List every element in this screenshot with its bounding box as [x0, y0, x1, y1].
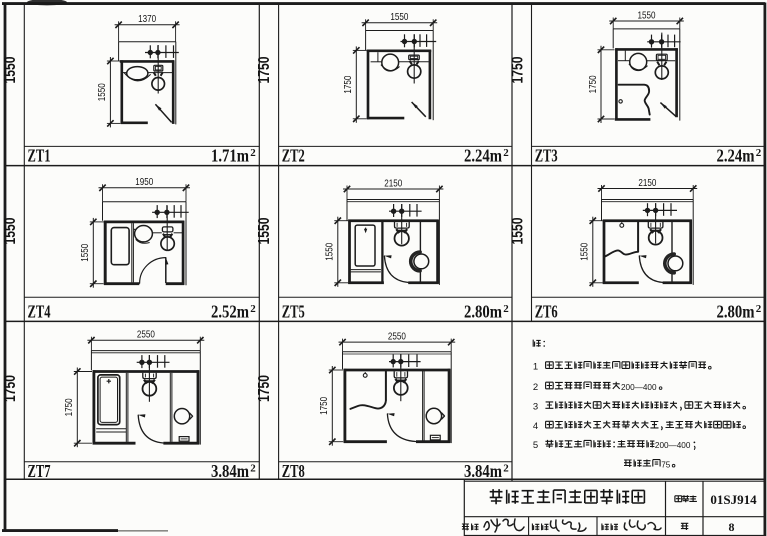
svg-text:8: 8: [729, 520, 735, 534]
svg-text:3.84m: 3.84m: [464, 461, 502, 481]
svg-text:2.52m: 2.52m: [211, 302, 249, 322]
svg-text:1950: 1950: [135, 176, 153, 188]
svg-text:5: 5: [533, 440, 538, 451]
svg-text:ZT6: ZT6: [535, 302, 558, 322]
svg-text:1550: 1550: [256, 217, 273, 244]
svg-text:01SJ914: 01SJ914: [710, 492, 757, 507]
svg-text:ZT1: ZT1: [28, 146, 51, 166]
svg-text:1370: 1370: [138, 13, 156, 25]
svg-text:1550: 1550: [390, 11, 408, 23]
svg-text:2: 2: [250, 303, 256, 315]
svg-text:2: 2: [250, 147, 256, 159]
svg-text:2: 2: [250, 463, 256, 475]
svg-text:2150: 2150: [384, 177, 402, 189]
svg-text:2150: 2150: [638, 177, 656, 189]
svg-text:2.24m: 2.24m: [717, 146, 755, 166]
svg-text:2.80m: 2.80m: [717, 302, 755, 322]
svg-text:200—400: 200—400: [655, 441, 691, 450]
svg-text:1550: 1550: [509, 217, 526, 244]
svg-text:1750: 1750: [318, 397, 330, 415]
svg-text:1550: 1550: [96, 83, 108, 101]
svg-text:ZT5: ZT5: [282, 302, 305, 322]
svg-text:2550: 2550: [388, 331, 406, 343]
svg-text:2: 2: [503, 463, 509, 475]
svg-text:1750: 1750: [256, 56, 273, 83]
svg-text:3: 3: [533, 401, 538, 412]
svg-text:1750: 1750: [63, 398, 75, 416]
svg-text:1550: 1550: [638, 9, 656, 21]
svg-text:ZT2: ZT2: [282, 146, 305, 166]
svg-text:1750: 1750: [342, 75, 354, 93]
svg-text:75: 75: [661, 460, 671, 469]
svg-text:ZT4: ZT4: [28, 302, 51, 322]
svg-text:2: 2: [533, 382, 538, 393]
svg-text:ZT3: ZT3: [535, 146, 558, 166]
svg-text:3.84m: 3.84m: [211, 461, 249, 481]
svg-text:1750: 1750: [256, 375, 273, 402]
svg-text:2: 2: [503, 147, 509, 159]
svg-text:2.24m: 2.24m: [464, 146, 502, 166]
svg-text:1750: 1750: [509, 56, 526, 83]
svg-text:1: 1: [533, 361, 538, 372]
svg-text:1550: 1550: [324, 243, 336, 261]
svg-text:2: 2: [756, 147, 762, 159]
svg-text:ZT8: ZT8: [282, 461, 305, 481]
svg-text:2: 2: [756, 303, 762, 315]
svg-text:2550: 2550: [137, 329, 155, 341]
svg-text:1550: 1550: [2, 217, 19, 244]
svg-text:1550: 1550: [79, 244, 91, 262]
svg-text:1550: 1550: [2, 56, 19, 83]
svg-text:4: 4: [533, 421, 538, 432]
svg-text:200—400: 200—400: [621, 383, 657, 392]
svg-text:2: 2: [503, 303, 509, 315]
svg-text:1750: 1750: [2, 375, 19, 402]
svg-text:1550: 1550: [579, 243, 591, 261]
svg-text:2.80m: 2.80m: [464, 302, 502, 322]
svg-text:1750: 1750: [587, 75, 599, 93]
svg-text:ZT7: ZT7: [28, 461, 51, 481]
svg-text:1.71m: 1.71m: [211, 146, 249, 166]
